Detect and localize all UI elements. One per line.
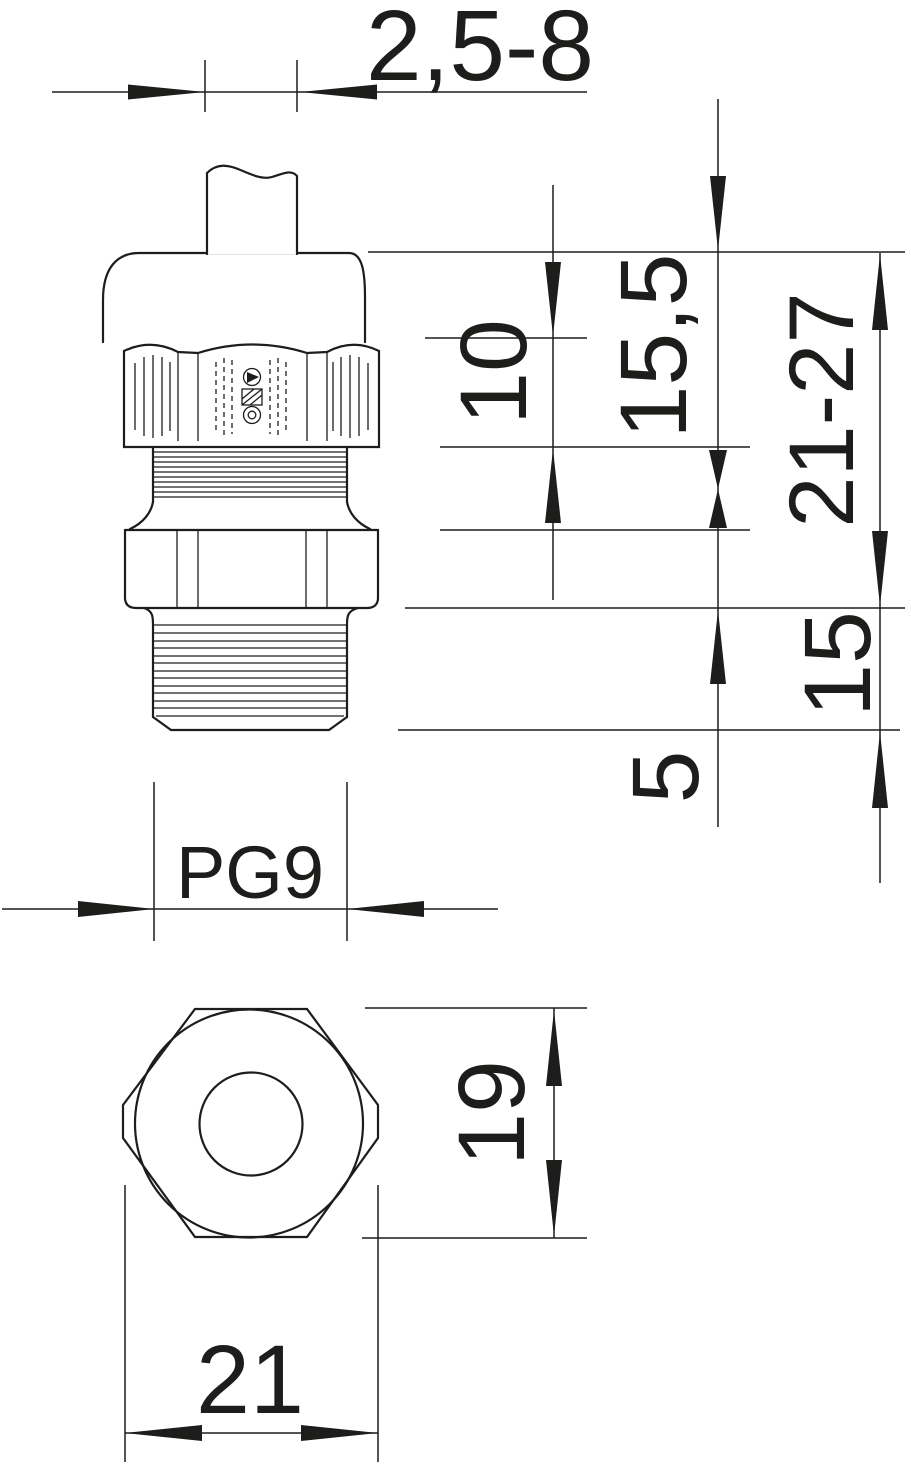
arrow-up-icon xyxy=(546,1010,562,1086)
neck-left xyxy=(144,608,153,625)
arrow-down-icon xyxy=(545,262,561,336)
bottom-view xyxy=(123,1009,378,1238)
male-thread xyxy=(153,625,347,730)
dim-clamping-range: 2,5-8 xyxy=(52,0,594,112)
cable-gland-drawing: 2,5-8 10 15,5 5 21-27 15 xyxy=(0,0,911,1465)
dim-label-cap-height: 15,5 xyxy=(601,254,707,439)
cable-hole-circle xyxy=(200,1073,303,1176)
dim-thread-size: PG9 xyxy=(2,782,498,941)
technical-drawing-canvas: 2,5-8 10 15,5 5 21-27 15 xyxy=(0,0,911,1465)
cap-hex xyxy=(124,345,379,448)
dim-cap-and-collar: 15,5 5 xyxy=(601,99,727,827)
arrow-up-icon xyxy=(710,610,726,684)
cap-dome xyxy=(103,253,365,342)
arrow-bowtie-top-icon xyxy=(709,450,727,489)
cable-fill xyxy=(207,166,297,254)
knurl-left xyxy=(135,355,170,438)
arrow-down-icon xyxy=(872,531,888,606)
hex-nut xyxy=(125,530,378,608)
dim-label-clamping-range: 2,5-8 xyxy=(366,0,594,102)
arrow-left-icon xyxy=(347,901,424,917)
dim-label-collar-height: 5 xyxy=(613,751,719,804)
arrow-up-icon xyxy=(545,449,561,523)
dim-label-thread-length: 15 xyxy=(785,611,891,717)
dim-label-overall-length: 21-27 xyxy=(771,292,873,527)
arrow-right-icon xyxy=(301,1425,378,1441)
front-view xyxy=(103,166,379,730)
flare-right xyxy=(347,502,370,529)
neck-right xyxy=(347,608,358,625)
arrow-bowtie-bottom-icon xyxy=(709,489,727,528)
dim-across-flats: 19 xyxy=(362,1008,587,1238)
flare-left xyxy=(130,502,153,529)
arrow-down-icon xyxy=(546,1160,562,1236)
arrow-down-icon xyxy=(710,176,726,250)
dim-across-corners: 21 xyxy=(125,1185,378,1462)
arrow-right-icon xyxy=(128,85,205,100)
hexagon-outline xyxy=(123,1009,378,1237)
dim-label-hex-height: 10 xyxy=(441,319,547,425)
dim-hex-height: 10 xyxy=(441,185,561,600)
knurl-right xyxy=(333,355,368,438)
arrow-right-icon xyxy=(78,901,154,917)
dim-label-thread-size: PG9 xyxy=(176,831,324,914)
arrow-left-icon xyxy=(125,1425,202,1441)
sealing-section xyxy=(130,447,370,529)
dim-overall-and-thread-length: 21-27 15 xyxy=(771,253,891,883)
arrow-up-icon xyxy=(872,732,888,808)
obo-logo xyxy=(242,369,262,424)
dim-label-across-flats: 19 xyxy=(439,1060,545,1166)
dim-label-across-corners: 21 xyxy=(196,1325,304,1434)
arrow-up-icon xyxy=(872,254,888,330)
